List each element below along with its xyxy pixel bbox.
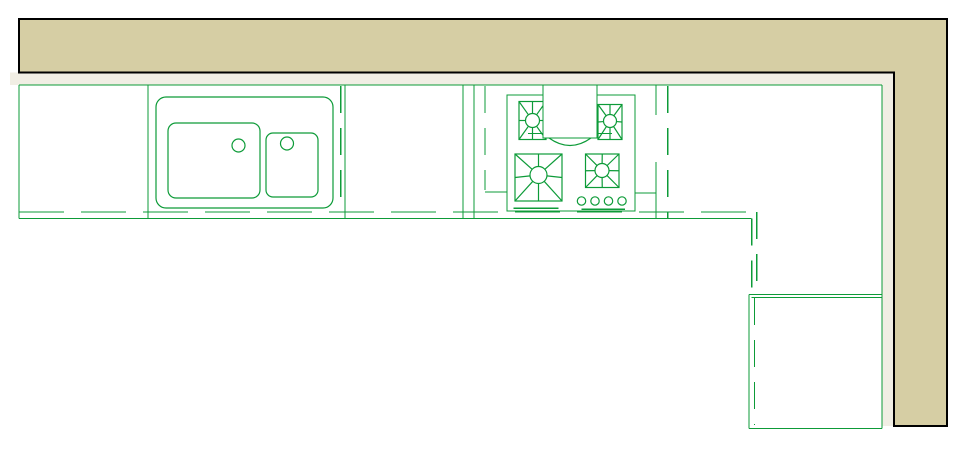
control-knob (604, 197, 612, 205)
burner-spoke (614, 126, 622, 139)
floorplan-viewport: Kitchen CAD floor plan (0, 0, 975, 461)
control-knob (618, 197, 626, 205)
kitchen-floorplan-canvas: Kitchen CAD floor plan (0, 0, 975, 461)
sink (156, 97, 333, 208)
burner-spoke (515, 176, 530, 178)
control-knob (591, 197, 599, 205)
burner-spoke (519, 126, 528, 139)
burner-spoke (586, 176, 598, 188)
cooktop-knobs (577, 197, 626, 205)
burner-center (604, 115, 617, 128)
burner-bottom-right (586, 154, 620, 188)
wall-inner-band (10, 73, 894, 427)
burner-center (530, 167, 547, 184)
burner-spoke (519, 102, 528, 115)
burner-spoke (586, 154, 598, 166)
hood-body (543, 85, 597, 138)
sink-outline (156, 97, 333, 208)
sink-basin-large (168, 123, 260, 198)
burner-spoke (614, 105, 622, 116)
burner-spoke (607, 154, 619, 166)
burner-center (595, 164, 609, 178)
cooktop (507, 85, 635, 211)
burner-spoke (544, 181, 562, 201)
sink-drain-large (232, 139, 245, 152)
burner-spoke (515, 154, 532, 169)
countertop-dashed-lines (19, 212, 757, 295)
sink-basin-small (266, 133, 318, 197)
burner-spoke (515, 181, 533, 201)
hood-front-arc (549, 138, 591, 146)
cooktop-trim-lines (514, 208, 626, 209)
burner-top-right (598, 105, 622, 140)
burner-spoke (545, 154, 562, 169)
burner-center (526, 114, 540, 128)
burner-spoke (547, 176, 562, 178)
burner-spoke (607, 175, 619, 187)
burner-spoke (598, 105, 606, 116)
sink-drain-small (281, 137, 294, 150)
corner-cabinet (749, 295, 882, 429)
control-knob (577, 197, 585, 205)
burner-bottom-left (515, 154, 562, 201)
